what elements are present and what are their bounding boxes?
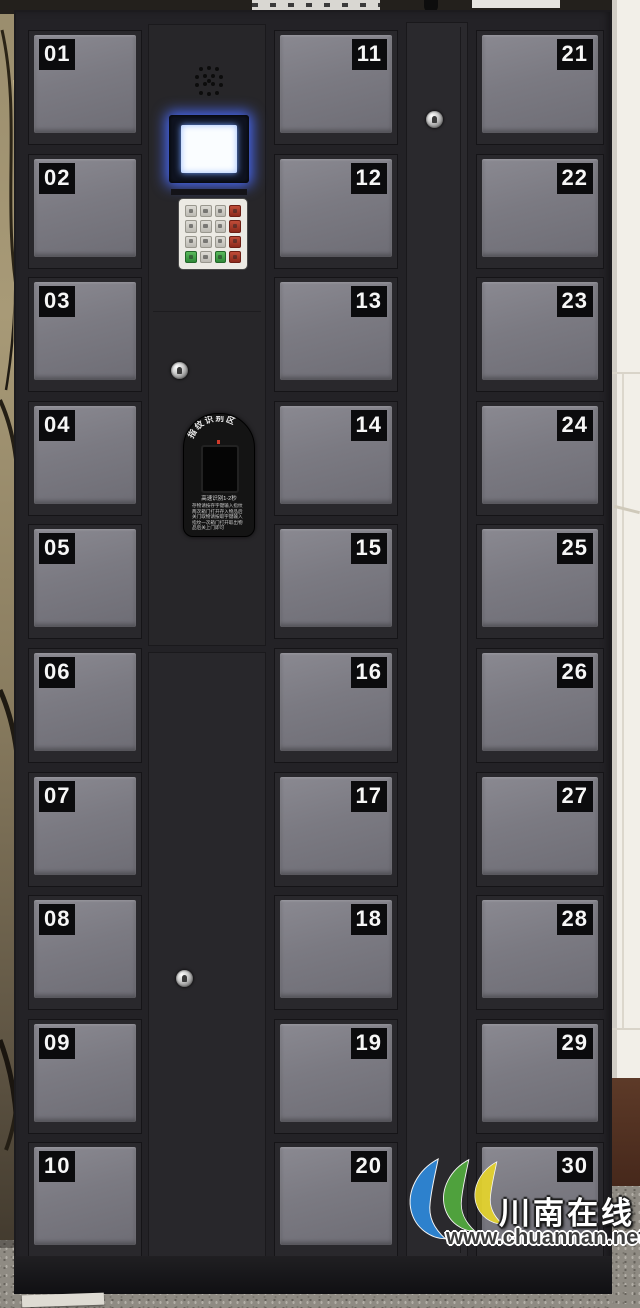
locker-door-25[interactable]: 25 xyxy=(476,524,604,639)
locker-door-28[interactable]: 28 xyxy=(476,895,604,1010)
locker-column-right: 21222324252627282930 xyxy=(476,30,604,1258)
locker-column-middle: 11121314151617181920 xyxy=(274,30,398,1258)
locker-door-panel: 07 xyxy=(34,777,136,875)
locker-door-27[interactable]: 27 xyxy=(476,772,604,887)
watermark: 川南在线 www.chuannan.net xyxy=(400,1150,640,1280)
locker-door-panel: 08 xyxy=(34,900,136,998)
locker-door-panel: 01 xyxy=(34,35,136,133)
keypad-key-gray[interactable] xyxy=(200,251,212,263)
smart-locker-cabinet: 01020304050607080910 指纹识别区 高速识别1-2 xyxy=(14,10,612,1294)
locker-door-22[interactable]: 22 xyxy=(476,154,604,269)
wall-shadow xyxy=(612,0,617,1185)
fingerprint-led xyxy=(217,440,220,444)
locker-door-panel: 29 xyxy=(482,1024,598,1122)
locker-door-panel: 02 xyxy=(34,159,136,257)
locker-door-18[interactable]: 18 xyxy=(274,895,398,1010)
locker-door-06[interactable]: 06 xyxy=(28,648,142,763)
keypad-key-gray[interactable] xyxy=(185,236,197,248)
locker-door-panel: 21 xyxy=(482,35,598,133)
locker-number-label: 17 xyxy=(351,781,387,812)
locker-number-label: 05 xyxy=(39,533,75,564)
locker-number-label: 29 xyxy=(557,1028,593,1059)
locker-door-panel: 26 xyxy=(482,653,598,751)
locker-number-label: 20 xyxy=(351,1151,387,1182)
fingerprint-scanner-window[interactable] xyxy=(201,445,239,493)
locker-number-label: 04 xyxy=(39,410,75,441)
locker-door-panel: 25 xyxy=(482,529,598,627)
locker-number-label: 24 xyxy=(557,410,593,441)
items-on-cabinet-top xyxy=(252,0,380,10)
keypad-key-gray[interactable] xyxy=(215,220,227,232)
locker-door-panel: 14 xyxy=(280,406,392,504)
locker-number-label: 15 xyxy=(351,533,387,564)
keypad-key-gray[interactable] xyxy=(200,236,212,248)
tile-grout-line xyxy=(612,372,640,374)
locker-door-panel: 15 xyxy=(280,529,392,627)
locker-door-23[interactable]: 23 xyxy=(476,277,604,392)
locker-column-left: 01020304050607080910 xyxy=(28,30,142,1258)
locker-number-label: 28 xyxy=(557,904,593,935)
fingerprint-instruction-line: 品后关上门即可 xyxy=(192,525,248,531)
locker-door-07[interactable]: 07 xyxy=(28,772,142,887)
keypad-key-red[interactable] xyxy=(229,205,241,217)
locker-number-label: 12 xyxy=(351,163,387,194)
locker-door-panel: 23 xyxy=(482,282,598,380)
service-door-lock[interactable] xyxy=(176,970,193,987)
panel-seam xyxy=(153,311,261,312)
locker-door-panel: 24 xyxy=(482,406,598,504)
locker-number-label: 16 xyxy=(351,657,387,688)
locker-door-panel: 28 xyxy=(482,900,598,998)
tile-grout-line xyxy=(622,374,624,1028)
frame-column xyxy=(406,22,468,1258)
locker-door-panel: 04 xyxy=(34,406,136,504)
locker-door-panel: 12 xyxy=(280,159,392,257)
locker-number-label: 27 xyxy=(557,781,593,812)
locker-door-panel: 09 xyxy=(34,1024,136,1122)
locker-door-17[interactable]: 17 xyxy=(274,772,398,887)
fingerprint-subtitle: 高速识别1-2秒 xyxy=(184,494,254,502)
locker-door-29[interactable]: 29 xyxy=(476,1019,604,1134)
locker-door-04[interactable]: 04 xyxy=(28,401,142,516)
locker-door-panel: 13 xyxy=(280,282,392,380)
locker-number-label: 03 xyxy=(39,286,75,317)
locker-door-26[interactable]: 26 xyxy=(476,648,604,763)
locker-number-label: 09 xyxy=(39,1028,75,1059)
locker-door-panel: 20 xyxy=(280,1147,392,1245)
locker-door-13[interactable]: 13 xyxy=(274,277,398,392)
locker-door-21[interactable]: 21 xyxy=(476,30,604,145)
locker-door-panel: 06 xyxy=(34,653,136,751)
fingerprint-instruction-line: 关门取物请按取字键输入 xyxy=(192,514,248,520)
locker-door-11[interactable]: 11 xyxy=(274,30,398,145)
locker-door-panel: 17 xyxy=(280,777,392,875)
locker-number-label: 19 xyxy=(351,1028,387,1059)
locker-door-10[interactable]: 10 xyxy=(28,1142,142,1257)
keypad-key-green[interactable] xyxy=(185,251,197,263)
locker-number-label: 18 xyxy=(351,904,387,935)
locker-number-label: 02 xyxy=(39,163,75,194)
fingerprint-instruction-line: 存物请按存字键输入指纹 xyxy=(192,503,248,509)
service-door[interactable] xyxy=(148,652,266,1258)
keypad xyxy=(178,198,248,270)
keypad-key-gray[interactable] xyxy=(215,205,227,217)
locker-door-09[interactable]: 09 xyxy=(28,1019,142,1134)
keypad-key-red[interactable] xyxy=(229,220,241,232)
locker-door-19[interactable]: 19 xyxy=(274,1019,398,1134)
keypad-key-gray[interactable] xyxy=(185,205,197,217)
items-on-cabinet-top xyxy=(472,0,560,8)
locker-number-label: 25 xyxy=(557,533,593,564)
locker-door-panel: 16 xyxy=(280,653,392,751)
fingerprint-reader: 指纹识别区 高速识别1-2秒 存物请按存字键输入指纹两次箱门打开存入物品后关门取… xyxy=(183,413,255,537)
fingerprint-instructions: 存物请按存字键输入指纹两次箱门打开存入物品后关门取物请按取字键输入指纹一次箱门打… xyxy=(192,503,248,531)
locker-number-label: 07 xyxy=(39,781,75,812)
locker-number-label: 13 xyxy=(351,286,387,317)
lcd-screen-bezel xyxy=(169,115,249,183)
svg-text:指纹识别区: 指纹识别区 xyxy=(186,416,238,440)
locker-door-05[interactable]: 05 xyxy=(28,524,142,639)
locker-door-panel: 10 xyxy=(34,1147,136,1245)
locker-door-02[interactable]: 02 xyxy=(28,154,142,269)
locker-number-label: 10 xyxy=(39,1151,75,1182)
locker-door-08[interactable]: 08 xyxy=(28,895,142,1010)
locker-door-panel: 03 xyxy=(34,282,136,380)
locker-door-panel: 11 xyxy=(280,35,392,133)
locker-door-panel: 05 xyxy=(34,529,136,627)
locker-number-label: 26 xyxy=(557,657,593,688)
keypad-key-red[interactable] xyxy=(229,251,241,263)
locker-door-panel: 22 xyxy=(482,159,598,257)
locker-number-label: 01 xyxy=(39,39,75,70)
wall-cable xyxy=(614,505,640,514)
locker-door-panel: 19 xyxy=(280,1024,392,1122)
tile-grout-line xyxy=(612,1028,640,1030)
locker-number-label: 14 xyxy=(351,410,387,441)
lcd-screen xyxy=(181,125,237,173)
keypad-key-red[interactable] xyxy=(229,236,241,248)
keypad-key-green[interactable] xyxy=(215,251,227,263)
locker-door-14[interactable]: 14 xyxy=(274,401,398,516)
locker-number-label: 22 xyxy=(557,163,593,194)
locker-door-20[interactable]: 20 xyxy=(274,1142,398,1257)
locker-number-label: 11 xyxy=(352,39,387,70)
locker-door-12[interactable]: 12 xyxy=(274,154,398,269)
control-panel: 指纹识别区 高速识别1-2秒 存物请按存字键输入指纹两次箱门打开存入物品后关门取… xyxy=(148,24,266,646)
speaker-grille-icon xyxy=(187,61,231,101)
locker-door-01[interactable]: 01 xyxy=(28,30,142,145)
locker-door-15[interactable]: 15 xyxy=(274,524,398,639)
watermark-site-url: www.chuannan.net xyxy=(446,1224,640,1250)
screen-seam xyxy=(171,189,247,195)
locker-number-label: 23 xyxy=(557,286,593,317)
keypad-key-gray[interactable] xyxy=(200,205,212,217)
locker-number-label: 21 xyxy=(557,39,593,70)
locker-cabinet-photo: 01020304050607080910 指纹识别区 高速识别1-2 xyxy=(0,0,640,1308)
keypad-key-gray[interactable] xyxy=(185,220,197,232)
locker-number-label: 08 xyxy=(39,904,75,935)
locker-door-panel: 27 xyxy=(482,777,598,875)
keypad-key-gray[interactable] xyxy=(215,236,227,248)
fingerprint-title: 指纹识别区 xyxy=(186,416,238,440)
locker-door-16[interactable]: 16 xyxy=(274,648,398,763)
locker-number-label: 06 xyxy=(39,657,75,688)
keypad-key-gray[interactable] xyxy=(200,220,212,232)
panel-keyhole-lock[interactable] xyxy=(171,362,188,379)
master-keyhole-lock[interactable] xyxy=(426,111,443,128)
locker-door-panel: 18 xyxy=(280,900,392,998)
locker-door-03[interactable]: 03 xyxy=(28,277,142,392)
locker-door-24[interactable]: 24 xyxy=(476,401,604,516)
